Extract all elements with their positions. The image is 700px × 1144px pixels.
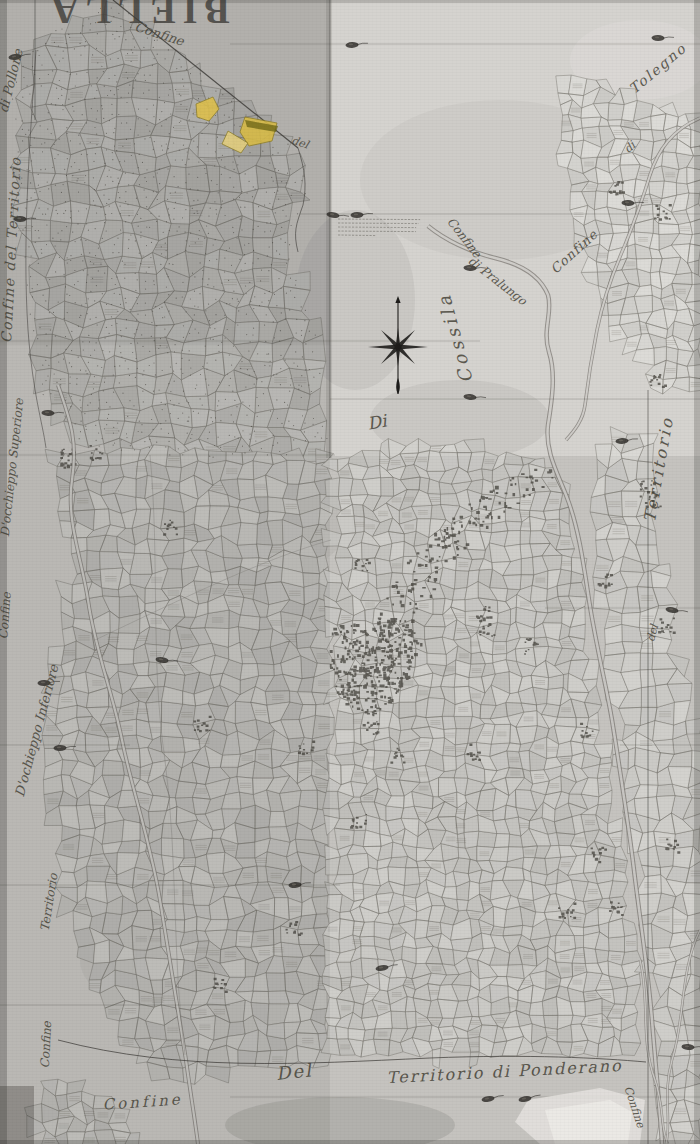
map-scan: BIELLAConfinedi PolloneConfine del Terri…	[0, 0, 700, 1144]
label-del-bottom: Del	[275, 1059, 314, 1084]
biella-cadastral-map: BIELLAConfinedi PolloneConfine del Terri…	[0, 0, 700, 1144]
label-confine-left-bottom: Confine	[38, 1020, 54, 1069]
